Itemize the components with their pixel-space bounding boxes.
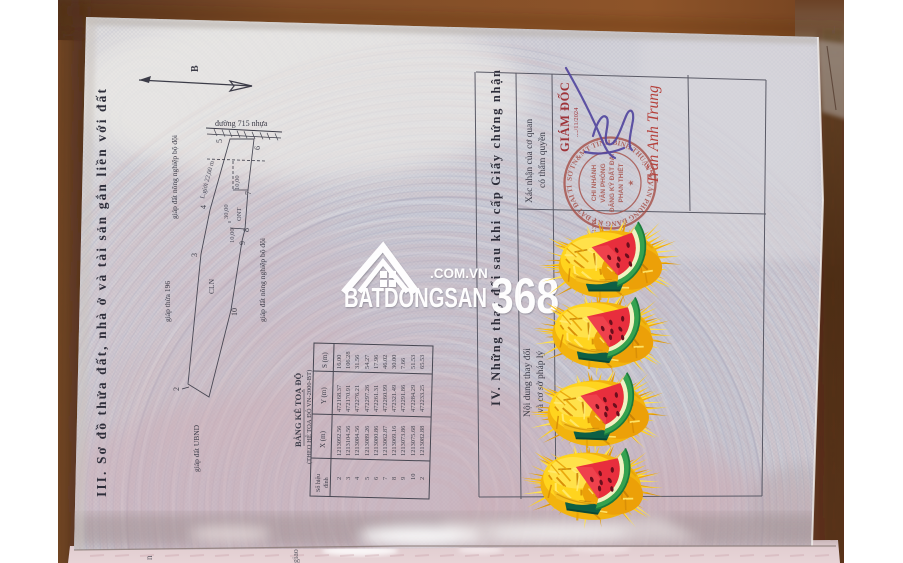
svg-text:giáp đất UBND: giáp đất UBND bbox=[192, 424, 201, 472]
svg-text:9: 9 bbox=[238, 241, 247, 245]
svg-text:CLN: CLN bbox=[207, 278, 216, 294]
svg-text:1213062.87: 1213062.87 bbox=[382, 425, 389, 456]
svg-text:65.53: 65.53 bbox=[419, 355, 426, 369]
svg-text:VĂN PHÒNG: VĂN PHÒNG bbox=[598, 163, 607, 202]
svg-text:2: 2 bbox=[172, 387, 181, 391]
svg-text:472276.21: 472276.21 bbox=[354, 385, 361, 412]
svg-text:10,00: 10,00 bbox=[229, 228, 236, 243]
svg-text:30.00: 30.00 bbox=[391, 355, 398, 369]
svg-text:Nội dung thay đổi: Nội dung thay đổi bbox=[522, 348, 533, 417]
svg-text:3: 3 bbox=[190, 253, 199, 257]
svg-text:GIÁM ĐỐC: GIÁM ĐỐC bbox=[557, 82, 572, 152]
svg-text:Trần Anh Trung: Trần Anh Trung bbox=[645, 85, 662, 184]
svg-text:10: 10 bbox=[230, 308, 239, 316]
svg-text:17.96: 17.96 bbox=[373, 355, 380, 369]
svg-text:472233.25: 472233.25 bbox=[419, 385, 426, 412]
svg-text:472297.26: 472297.26 bbox=[364, 385, 371, 412]
svg-text:16.00: 16.00 bbox=[336, 355, 343, 369]
svg-text:10,00: 10,00 bbox=[234, 175, 241, 190]
svg-text:S (m): S (m) bbox=[321, 352, 329, 368]
svg-text:CHI NHÁNH: CHI NHÁNH bbox=[589, 164, 598, 201]
svg-text:8: 8 bbox=[391, 477, 398, 480]
svg-text:106.28: 106.28 bbox=[345, 351, 352, 369]
svg-text:đường 715 nhựa: đường 715 nhựa bbox=[215, 119, 268, 128]
svg-text:3: 3 bbox=[345, 477, 352, 480]
svg-text:13 PL: 13 PL bbox=[592, 217, 598, 232]
svg-text:7: 7 bbox=[244, 191, 253, 195]
svg-text:BẢNG KÊ TOẠ ĐỘ: BẢNG KÊ TOẠ ĐỘ bbox=[293, 373, 303, 447]
svg-text:2: 2 bbox=[336, 477, 343, 480]
svg-text:X (m): X (m) bbox=[319, 430, 327, 448]
svg-text:ONT: ONT bbox=[236, 208, 243, 221]
svg-text:472170.91: 472170.91 bbox=[345, 385, 352, 412]
svg-text:472168.37: 472168.37 bbox=[336, 384, 343, 412]
svg-text:1213084.56: 1213084.56 bbox=[354, 426, 361, 456]
svg-text:IV. Những thay đổi sau khi cấp: IV. Những thay đổi sau khi cấp Giấy chứn… bbox=[489, 70, 503, 406]
svg-text:8: 8 bbox=[242, 228, 251, 232]
svg-text:.COM.VN: .COM.VN bbox=[430, 266, 488, 281]
svg-text:1213089.26: 1213089.26 bbox=[364, 426, 371, 456]
svg-text:472284.29: 472284.29 bbox=[410, 385, 417, 412]
svg-text:1213075.68: 1213075.68 bbox=[410, 426, 417, 456]
svg-text:và cơ sở pháp lý: và cơ sở pháp lý bbox=[536, 350, 546, 413]
svg-text:5: 5 bbox=[215, 139, 224, 143]
svg-text:10: 10 bbox=[410, 474, 417, 480]
svg-text:2: 2 bbox=[419, 477, 426, 480]
svg-text:1213082.88: 1213082.88 bbox=[419, 426, 426, 456]
svg-text:5: 5 bbox=[364, 477, 371, 480]
svg-text:..../11/2024: ..../11/2024 bbox=[573, 107, 580, 137]
svg-text:III. Sơ đồ thửa đất, nhà ở và: III. Sơ đồ thửa đất, nhà ở và tài sản gắ… bbox=[94, 89, 109, 498]
svg-text:368: 368 bbox=[491, 268, 559, 324]
svg-text:1213069.16: 1213069.16 bbox=[391, 426, 398, 456]
svg-text:B: B bbox=[190, 65, 201, 72]
svg-text:30,00: 30,00 bbox=[223, 204, 230, 219]
svg-text:7.66: 7.66 bbox=[400, 358, 407, 369]
svg-text:6: 6 bbox=[253, 146, 262, 150]
svg-text:54.27: 54.27 bbox=[364, 354, 371, 369]
svg-text:46.02: 46.02 bbox=[382, 355, 389, 369]
svg-text:n: n bbox=[144, 555, 154, 560]
svg-text:đỉnh: đỉnh bbox=[324, 477, 330, 488]
svg-text:Y (m): Y (m) bbox=[320, 387, 328, 404]
svg-text:472321.49: 472321.49 bbox=[391, 385, 398, 412]
svg-text:1213080.86: 1213080.86 bbox=[373, 426, 380, 456]
svg-text:472260.99: 472260.99 bbox=[382, 385, 389, 412]
svg-text:4: 4 bbox=[199, 205, 208, 209]
svg-text:Số hiệu: Số hiệu bbox=[315, 474, 322, 492]
svg-text:1213104.56: 1213104.56 bbox=[345, 426, 352, 456]
svg-text:có thẩm quyền: có thẩm quyền bbox=[537, 132, 548, 188]
svg-text:1213073.86: 1213073.86 bbox=[400, 426, 407, 456]
svg-text:472261.31: 472261.31 bbox=[373, 385, 380, 412]
svg-text:giáp đất nông nghiệp bộ đội: giáp đất nông nghiệp bộ đội bbox=[258, 238, 267, 322]
svg-text:1213092.56: 1213092.56 bbox=[336, 426, 343, 456]
svg-text:giáp đất nông nghiệp bộ đội: giáp đất nông nghiệp bộ đội bbox=[170, 135, 179, 219]
svg-text:6: 6 bbox=[373, 477, 380, 480]
svg-text:472291.86: 472291.86 bbox=[400, 385, 407, 412]
svg-text:giáp thửa 196: giáp thửa 196 bbox=[163, 281, 172, 322]
svg-text:9: 9 bbox=[400, 477, 407, 480]
svg-text:giao: giao bbox=[291, 549, 300, 563]
svg-text:BATDONGSAN: BATDONGSAN bbox=[344, 282, 487, 313]
svg-text:Xác nhận của cơ quan: Xác nhận của cơ quan bbox=[525, 119, 535, 203]
svg-text:31.56: 31.56 bbox=[354, 355, 361, 369]
svg-text:51.53: 51.53 bbox=[410, 355, 417, 369]
